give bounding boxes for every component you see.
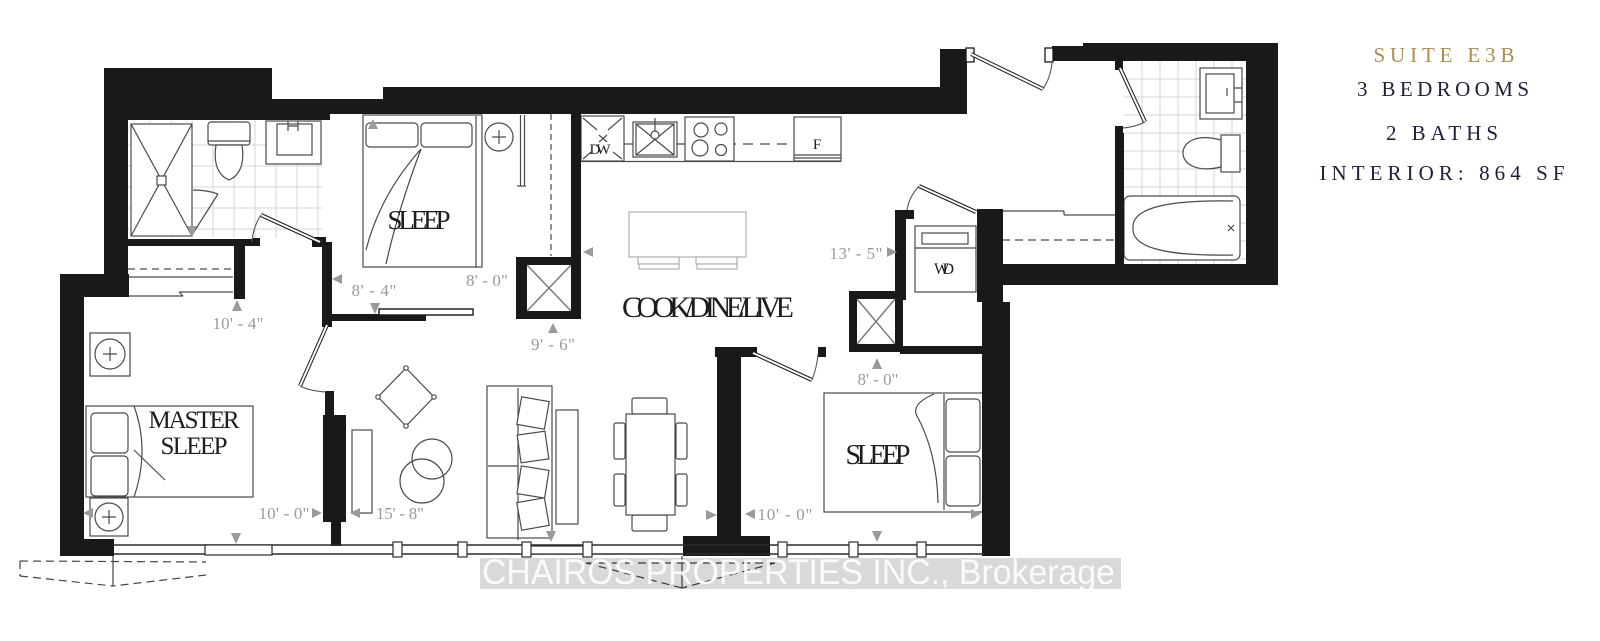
svg-text:CHAIROS PROPERTIES INC., Broke: CHAIROS PROPERTIES INC., Brokerage [482, 553, 1115, 592]
svg-text:SLEEP: SLEEP [161, 433, 228, 460]
svg-text:SLEEP: SLEEP [388, 205, 451, 235]
svg-text:10' - 0": 10' - 0" [259, 504, 310, 523]
svg-text:2 BATHS: 2 BATHS [1386, 121, 1498, 145]
svg-text:10' - 4": 10' - 4" [213, 314, 264, 333]
svg-text:9' - 6": 9' - 6" [531, 335, 575, 354]
svg-text:MASTER: MASTER [149, 407, 240, 434]
svg-text:3 BEDROOMS: 3 BEDROOMS [1357, 77, 1529, 101]
svg-text:8' - 0": 8' - 0" [858, 370, 899, 389]
svg-text:SLEEP: SLEEP [846, 440, 911, 471]
svg-text:8' - 4": 8' - 4" [352, 281, 397, 300]
svg-text:10' - 0": 10' - 0" [758, 505, 813, 524]
svg-text:8' - 0": 8' - 0" [466, 271, 508, 290]
svg-text:DW: DW [590, 142, 612, 158]
svg-text:13' - 5": 13' - 5" [830, 244, 883, 263]
svg-text:INTERIOR: 864 SF: INTERIOR: 864 SF [1320, 161, 1565, 185]
svg-text:COOK/DINE/LIVE: COOK/DINE/LIVE [622, 291, 794, 324]
svg-text:15' - 8": 15' - 8" [376, 504, 424, 523]
svg-text:WD: WD [934, 261, 954, 278]
svg-text:SUITE E3B: SUITE E3B [1374, 43, 1515, 67]
svg-text:F: F [813, 137, 821, 153]
